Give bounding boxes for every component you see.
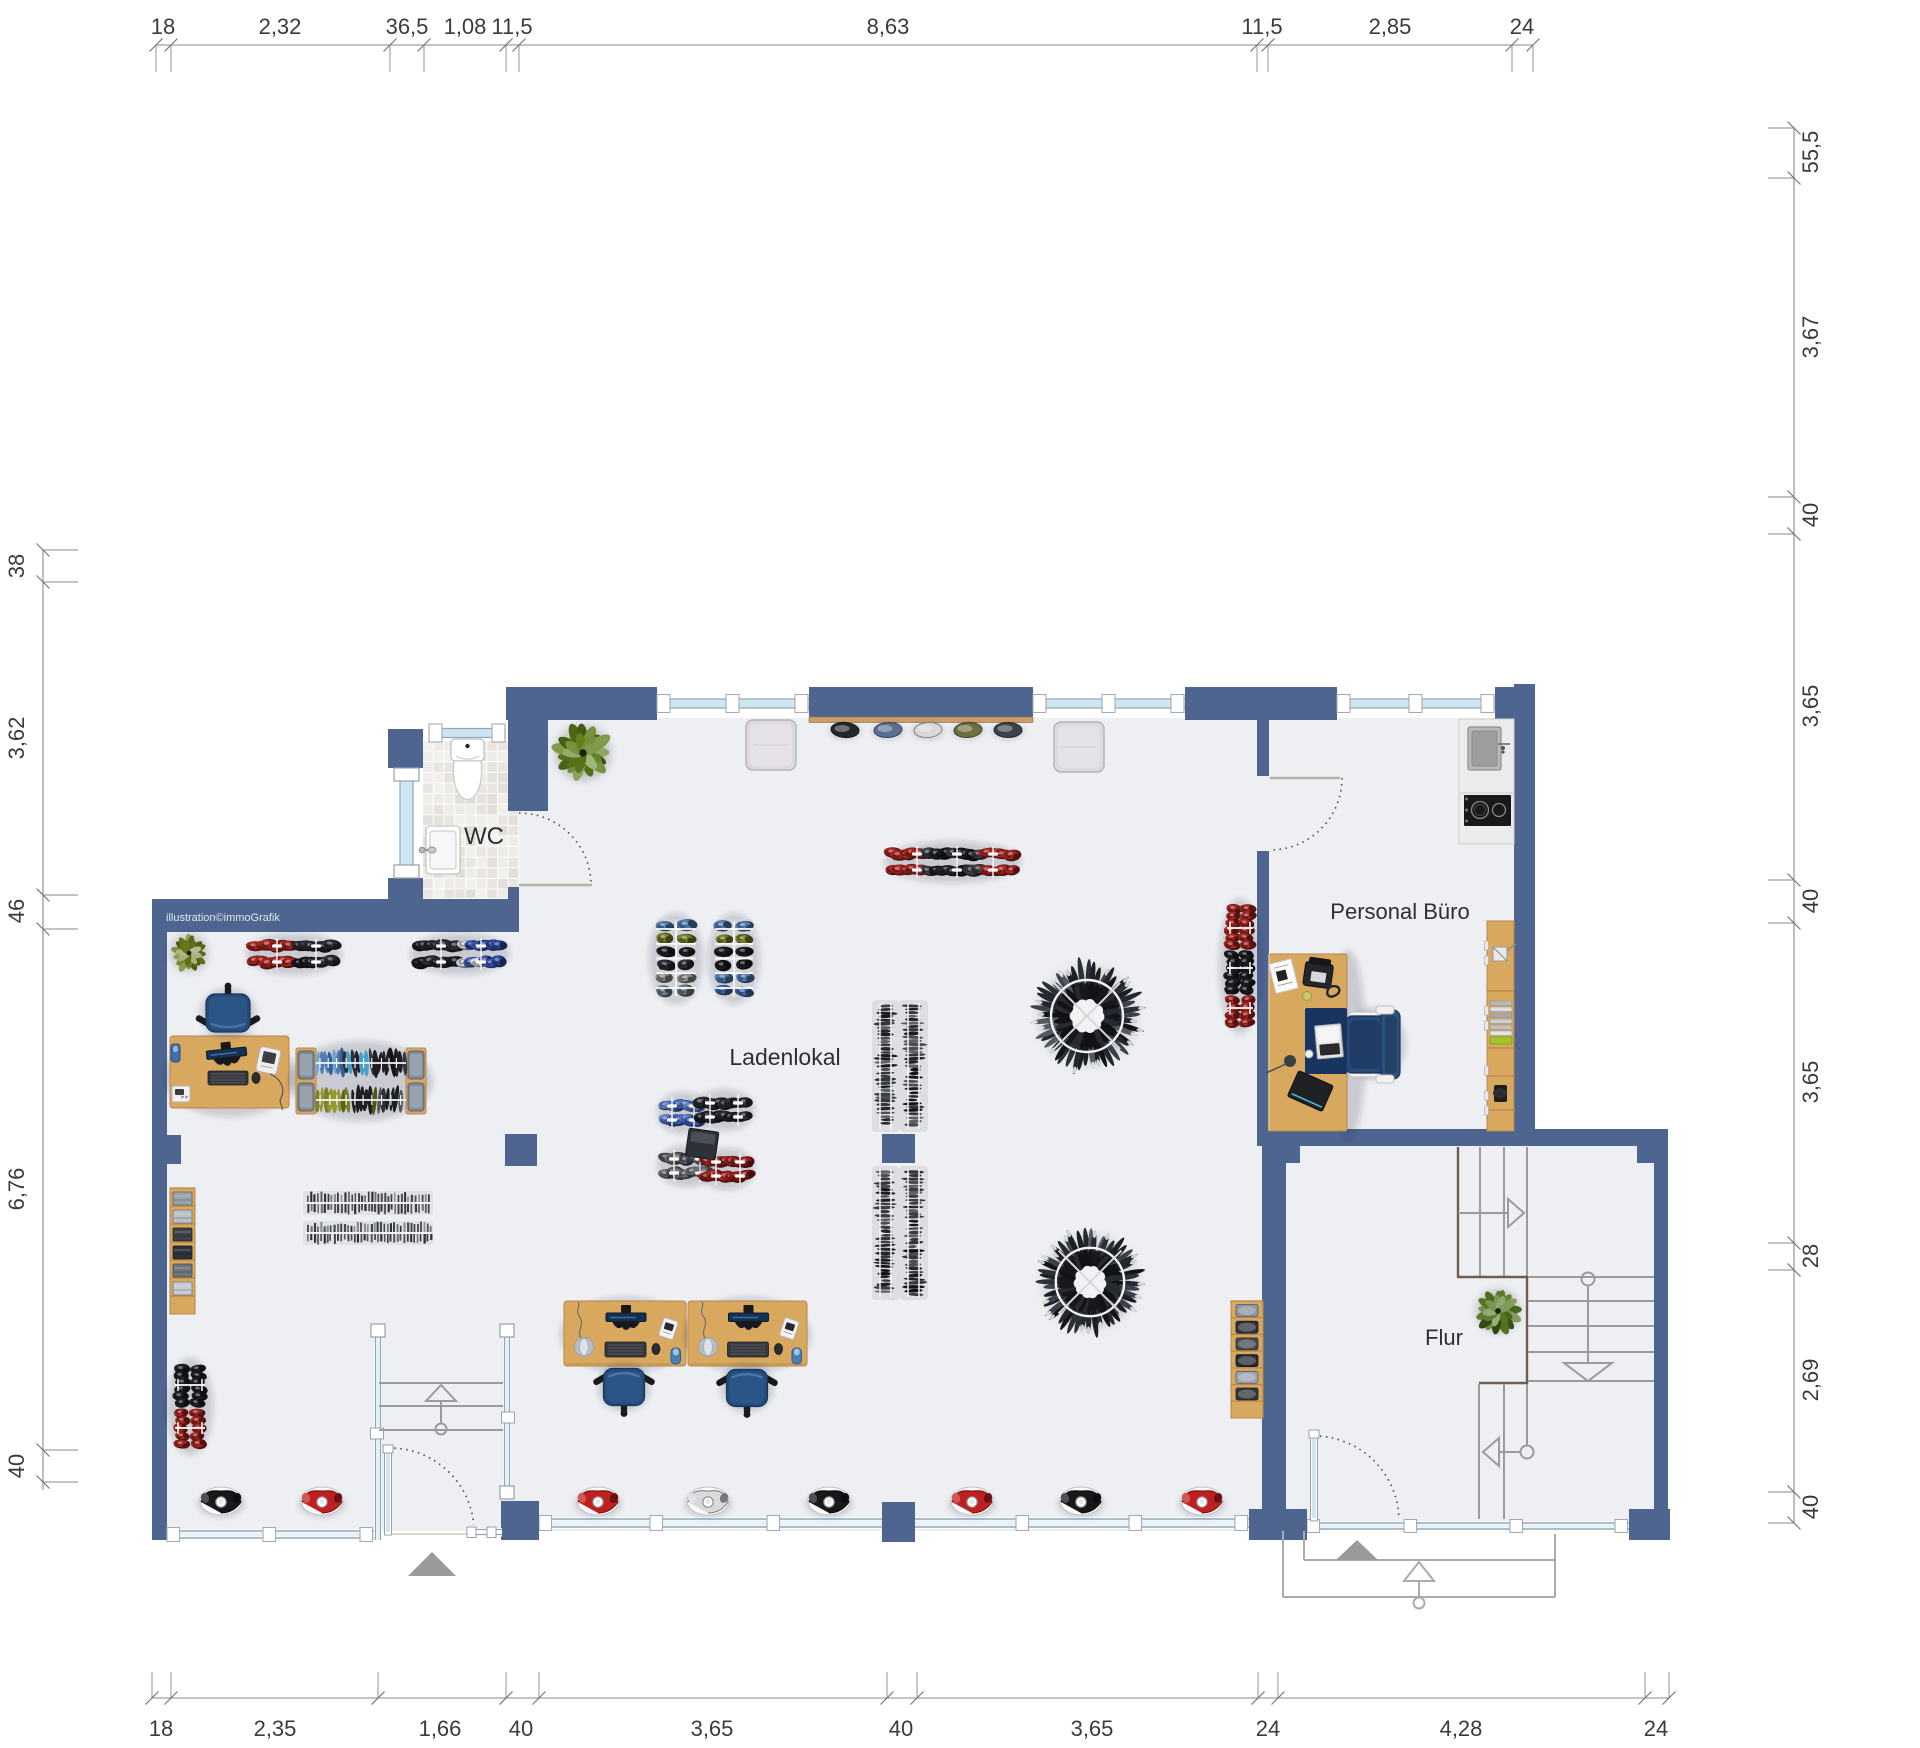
svg-text:55,5: 55,5	[1798, 131, 1823, 174]
svg-text:18: 18	[149, 1716, 173, 1741]
svg-text:3,65: 3,65	[1798, 685, 1823, 728]
svg-text:8,63: 8,63	[867, 14, 910, 39]
svg-text:2,32: 2,32	[259, 14, 302, 39]
svg-text:28: 28	[1798, 1244, 1823, 1268]
svg-text:Ladenlokal: Ladenlokal	[729, 1044, 840, 1070]
svg-text:3,65: 3,65	[691, 1716, 734, 1741]
svg-text:36,5: 36,5	[386, 14, 429, 39]
svg-text:18: 18	[151, 14, 175, 39]
svg-text:11,5: 11,5	[491, 14, 532, 39]
svg-text:WC: WC	[464, 823, 504, 850]
svg-text:40: 40	[1798, 503, 1823, 527]
svg-text:40: 40	[509, 1716, 533, 1741]
svg-text:38: 38	[4, 554, 29, 578]
svg-text:illustration©immoGrafik: illustration©immoGrafik	[166, 912, 280, 924]
svg-text:40: 40	[889, 1716, 913, 1741]
svg-text:2,69: 2,69	[1798, 1359, 1823, 1402]
svg-text:24: 24	[1256, 1716, 1280, 1741]
svg-text:40: 40	[1798, 889, 1823, 913]
svg-text:46: 46	[4, 899, 29, 923]
svg-text:3,62: 3,62	[4, 717, 29, 760]
svg-text:2,35: 2,35	[254, 1716, 297, 1741]
svg-text:40: 40	[4, 1454, 29, 1478]
svg-text:2,85: 2,85	[1369, 14, 1412, 39]
svg-text:1,08: 1,08	[444, 14, 487, 39]
svg-text:1,66: 1,66	[419, 1716, 462, 1741]
svg-text:40: 40	[1798, 1495, 1823, 1519]
svg-text:11,5: 11,5	[1241, 14, 1282, 39]
svg-text:3,65: 3,65	[1798, 1061, 1823, 1104]
svg-text:Flur: Flur	[1425, 1325, 1463, 1350]
svg-text:6,76: 6,76	[4, 1168, 29, 1211]
svg-text:4,28: 4,28	[1440, 1716, 1483, 1741]
svg-text:3,65: 3,65	[1071, 1716, 1114, 1741]
svg-text:Personal Büro: Personal Büro	[1330, 899, 1469, 924]
svg-text:3,67: 3,67	[1798, 316, 1823, 359]
svg-text:24: 24	[1510, 14, 1534, 39]
svg-text:24: 24	[1644, 1716, 1668, 1741]
